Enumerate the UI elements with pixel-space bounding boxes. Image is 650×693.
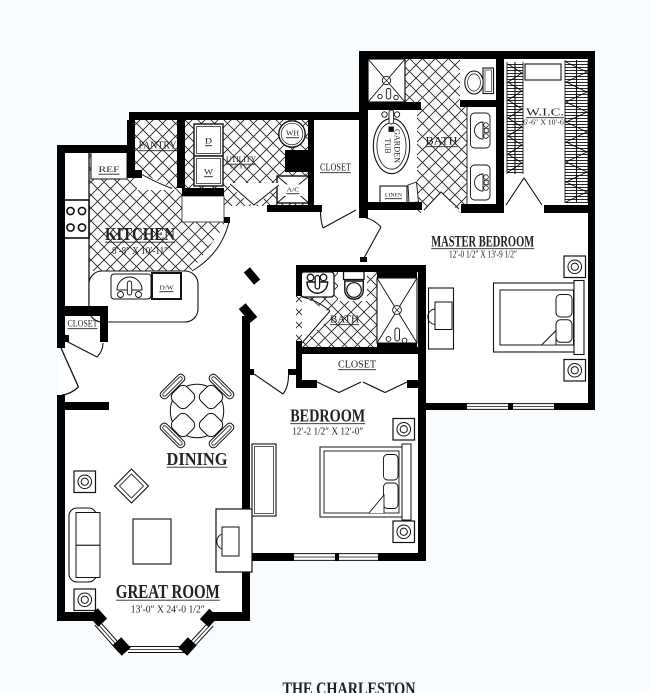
svg-text:5′-6″ X 5′-8″: 5′-6″ X 5′-8″ <box>230 165 252 171</box>
svg-text:KITCHEN: KITCHEN <box>105 224 175 244</box>
svg-text:8′-8″ X 10′-11″: 8′-8″ X 10′-11″ <box>112 246 168 257</box>
svg-text:D: D <box>205 136 212 146</box>
svg-text:D/W: D/W <box>160 285 175 292</box>
svg-text:W: W <box>204 167 213 177</box>
svg-text:LINEN: LINEN <box>385 193 402 199</box>
svg-text:GARDEN: GARDEN <box>393 129 403 163</box>
svg-text:6′-6″ X 10′-6″: 6′-6″ X 10′-6″ <box>523 118 567 127</box>
svg-text:PANTRY: PANTRY <box>139 141 177 152</box>
svg-text:UTILITY: UTILITY <box>226 154 256 164</box>
svg-text:CLOSET: CLOSET <box>320 163 351 174</box>
svg-text:WH: WH <box>286 130 299 138</box>
svg-text:A/C: A/C <box>287 187 300 194</box>
svg-text:DINING: DINING <box>167 449 228 469</box>
svg-text:BEDROOM: BEDROOM <box>290 406 365 426</box>
svg-text:REF: REF <box>99 164 120 174</box>
svg-text:BATH: BATH <box>330 315 359 326</box>
svg-text:12′-0 1/2″ X 13′-9 1/2″: 12′-0 1/2″ X 13′-9 1/2″ <box>449 250 517 261</box>
svg-text:CLOSET: CLOSET <box>338 360 376 371</box>
svg-text:CLOSET: CLOSET <box>68 320 98 330</box>
svg-text:THE CHARLESTON: THE CHARLESTON <box>283 679 416 693</box>
svg-text:TUB: TUB <box>383 139 393 154</box>
svg-text:13′-0″ X 24′-0 1/2″: 13′-0″ X 24′-0 1/2″ <box>131 604 205 616</box>
svg-text:MASTER BEDROOM: MASTER BEDROOM <box>431 234 534 251</box>
svg-text:BATH: BATH <box>426 134 458 148</box>
svg-text:12′-2 1/2″ X 12′-0″: 12′-2 1/2″ X 12′-0″ <box>292 427 363 438</box>
